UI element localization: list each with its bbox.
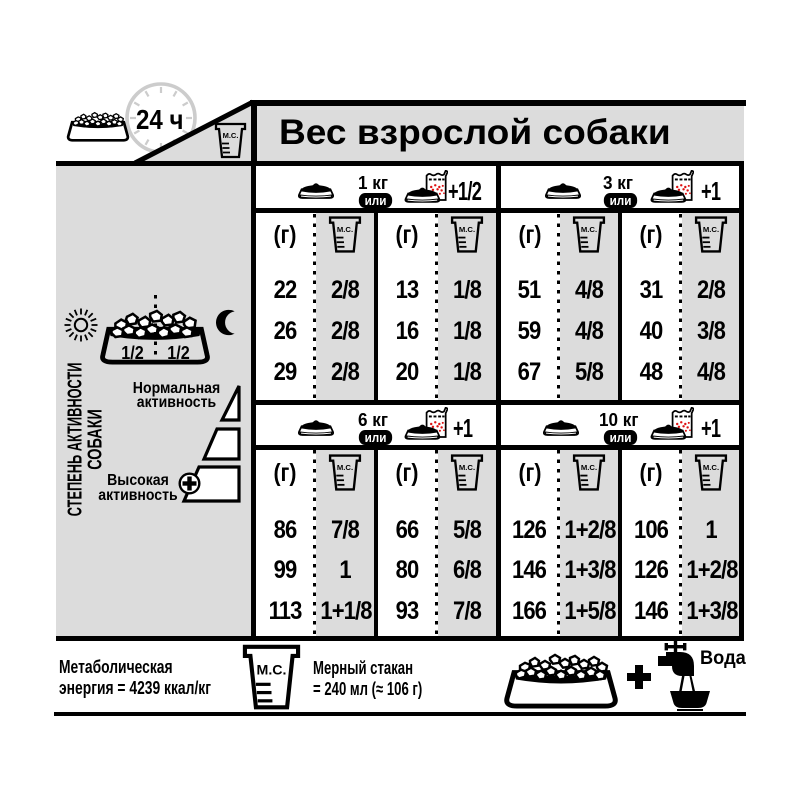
svg-text:М.С.: М.С. <box>223 131 239 140</box>
